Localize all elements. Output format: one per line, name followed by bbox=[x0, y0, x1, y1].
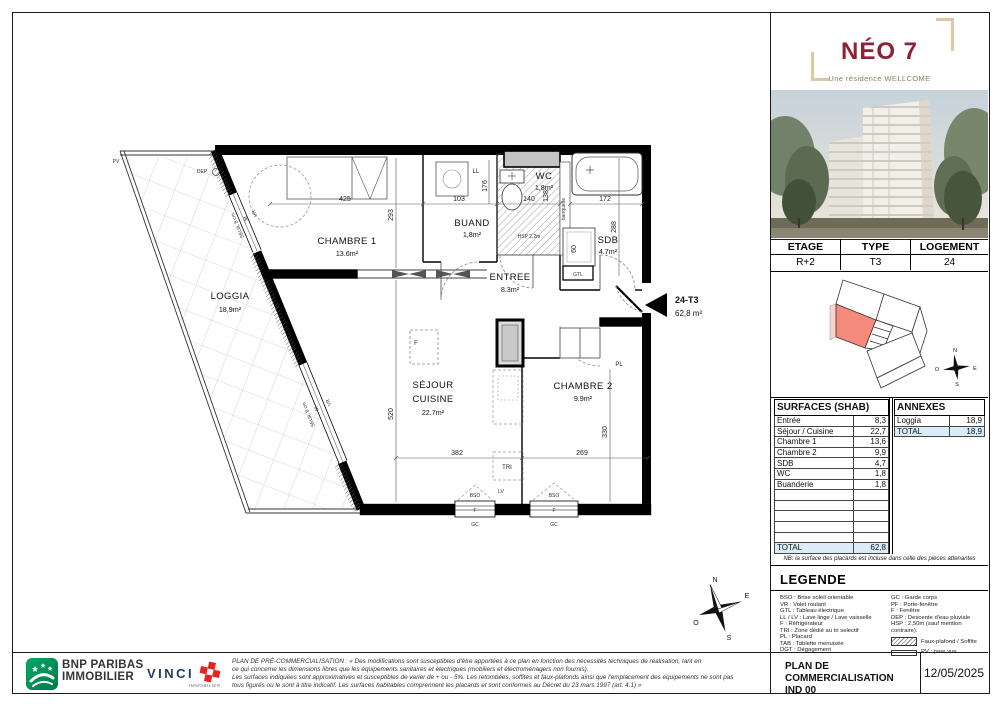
room-sejour-area: 22.7m² bbox=[422, 408, 445, 417]
vinci-sub-text: IMMOBILIER bbox=[147, 683, 221, 688]
plan-compass-icon: N E O S bbox=[691, 577, 750, 642]
annexe-row-label: Loggia bbox=[895, 416, 950, 427]
key-plan-drawing: N E S O bbox=[771, 271, 988, 397]
legend-section: LEGENDE BSO : Brise soleil orientable VR… bbox=[771, 566, 988, 652]
surfaces-table: SURFACES (SHAB) Entrée8,3 Séjour / Cuisi… bbox=[774, 399, 889, 554]
disclaimer-line: PLAN DE PRÉ-COMMERCIALISATION : « Des mo… bbox=[232, 658, 762, 666]
surface-row-value: 9,9 bbox=[854, 447, 889, 458]
info-value-type: T3 bbox=[841, 255, 911, 270]
surface-row-label: SDB bbox=[775, 458, 854, 469]
surface-row-value: 1,8 bbox=[854, 479, 889, 490]
surface-row-value: 8,3 bbox=[854, 416, 889, 427]
closet-front bbox=[357, 270, 487, 278]
surface-row-label: Chambre 2 bbox=[775, 447, 854, 458]
annexes-table: ANNEXES Loggia18,9 TOTAL18,9 bbox=[894, 399, 985, 437]
info-header-logement: LOGEMENT bbox=[911, 239, 988, 255]
room-sdb-area: 4.7m² bbox=[599, 247, 618, 256]
compass-n: N bbox=[712, 577, 717, 584]
legend-item: Faux-plafond / Soffite bbox=[921, 639, 977, 646]
dim-293: 293 bbox=[388, 209, 395, 221]
info-value-etage: R+2 bbox=[771, 255, 841, 270]
room-buand-label: BUAND bbox=[454, 218, 489, 229]
dim-330: 330 bbox=[602, 426, 609, 438]
surface-row-value: 1,8 bbox=[854, 468, 889, 479]
dim-138: 138 bbox=[543, 190, 550, 202]
room-entree-area: 8.3m² bbox=[501, 285, 520, 294]
wc-zone bbox=[497, 151, 570, 288]
building-render bbox=[771, 90, 988, 238]
tag-lv: LV bbox=[498, 489, 504, 495]
key-plan: N E S O bbox=[771, 271, 988, 398]
annexes-total-label: TOTAL bbox=[895, 426, 950, 437]
surfaces-section: SURFACES (SHAB) Entrée8,3 Séjour / Cuisi… bbox=[771, 397, 988, 566]
surface-row-value: 22,7 bbox=[854, 426, 889, 437]
disclaimer-line: tous figurés ou le sont à titre indicati… bbox=[232, 682, 762, 690]
plan-sheet: LOGGIA 18,9m² CHAMBRE 1 13.6m² BUAND 1,8… bbox=[0, 0, 1000, 707]
bnp-logo-icon bbox=[26, 658, 58, 690]
logo-box: NÉO 7 Une résidence WELLCOME bbox=[771, 12, 988, 91]
faux-plafond-symbol bbox=[891, 637, 917, 646]
legend-rule bbox=[771, 590, 988, 591]
surface-row-label: Séjour / Cuisine bbox=[775, 426, 854, 437]
residence-subtitle: Une résidence WELLCOME bbox=[771, 74, 988, 83]
room-sejour-label1: SÉJOUR bbox=[413, 380, 454, 391]
vinci-logo-text: VINCI bbox=[147, 666, 194, 681]
unit-label: 24-T3 62,8 m² bbox=[675, 295, 702, 318]
tag-dep: DEP bbox=[197, 169, 208, 175]
dim-520: 520 bbox=[388, 408, 395, 420]
nb-note: NB: la surface des placards est incluse … bbox=[771, 556, 988, 562]
legend-title: LEGENDE bbox=[780, 572, 846, 587]
info-header-etage: ETAGE bbox=[771, 239, 841, 255]
tag-gtl: GTL bbox=[573, 272, 583, 278]
footer-divider-1 bbox=[770, 653, 771, 693]
keyplan-compass-s: S bbox=[955, 382, 959, 388]
tag-tri: TRI bbox=[502, 465, 512, 471]
surface-row-label: Chambre 1 bbox=[775, 437, 854, 448]
plan-title-line1: PLAN DE COMMERCIALISATION bbox=[785, 661, 915, 685]
dim-140: 140 bbox=[523, 196, 535, 203]
surface-row-value: 4,7 bbox=[854, 458, 889, 469]
annexes-title: ANNEXES bbox=[895, 400, 985, 416]
tag-fridge: F bbox=[414, 341, 418, 347]
bnp-logo-text: BNP PARIBAS IMMOBILIER bbox=[62, 659, 143, 683]
tag-ll: LL bbox=[473, 169, 480, 175]
legend-item: HSP : 2,50m (sauf mention contraire). bbox=[891, 621, 986, 634]
keyplan-compass-o: O bbox=[935, 367, 940, 373]
room-sdb-label: SDB bbox=[598, 235, 619, 246]
dim-176: 176 bbox=[482, 180, 489, 192]
plan-title-line2: IND 00 bbox=[785, 685, 915, 697]
table-divider bbox=[889, 397, 893, 554]
surface-row-label: Entrée bbox=[775, 416, 854, 427]
surfaces-title: SURFACES (SHAB) bbox=[775, 400, 889, 416]
legend-right-column: GC : Garde corps PF : Porte-fenêtre F : … bbox=[891, 595, 986, 656]
tag-pl: PL bbox=[615, 362, 623, 368]
surface-row-label: WC bbox=[775, 468, 854, 479]
dim-269: 269 bbox=[576, 450, 588, 457]
tag-f-window-2: F bbox=[552, 508, 555, 514]
legend-left-column: BSO : Brise soleil orientable VR : Volet… bbox=[780, 595, 890, 654]
room-buand-area: 1,8m² bbox=[463, 230, 482, 239]
room-sejour-label2: CUISINE bbox=[412, 394, 453, 405]
room-chambre1-label: CHAMBRE 1 bbox=[317, 236, 376, 247]
dim-382: 382 bbox=[451, 450, 463, 457]
bnp-line1: BNP PARIBAS bbox=[62, 659, 143, 671]
sdb-fixtures bbox=[563, 153, 642, 290]
tag-pv: PV bbox=[113, 159, 120, 165]
tag-gc-2: GC bbox=[550, 522, 558, 528]
room-loggia-area: 18,9m² bbox=[219, 305, 242, 314]
dim-172: 172 bbox=[599, 196, 611, 203]
dim-288: 288 bbox=[611, 221, 618, 233]
compass-o: O bbox=[693, 620, 699, 627]
floor-plan: LOGGIA 18,9m² CHAMBRE 1 13.6m² BUAND 1,8… bbox=[12, 12, 770, 652]
tag-gc-1: GC bbox=[471, 522, 479, 528]
unit-code: 24-T3 bbox=[675, 295, 699, 305]
room-chambre1-area: 13.6m² bbox=[336, 249, 359, 258]
disclaimer-line: ce qui concerne les dimensions libres qu… bbox=[232, 666, 762, 674]
annexes-total-value: 18,9 bbox=[950, 426, 985, 437]
dim-60: 60 bbox=[571, 245, 578, 253]
info-header-type: TYPE bbox=[841, 239, 911, 255]
plan-title-block: PLAN DE COMMERCIALISATION IND 00 bbox=[785, 661, 915, 697]
unit-area: 62,8 m² bbox=[675, 309, 702, 318]
disclaimer-line: Les surfaces indiquées sont approximativ… bbox=[232, 674, 762, 682]
bnp-line2: IMMOBILIER bbox=[62, 671, 143, 683]
room-loggia-label: LOGGIA bbox=[211, 291, 250, 302]
residence-logo: NÉO 7 bbox=[771, 38, 988, 66]
room-chambre2-area: 9.9m² bbox=[574, 394, 593, 403]
tag-f-window-1: F bbox=[473, 508, 476, 514]
title-block-footer: BNP PARIBAS IMMOBILIER VINCI IMMOBILIER … bbox=[12, 652, 988, 693]
tag-hsp: HSP 2,2m bbox=[518, 234, 541, 240]
compass-s: S bbox=[727, 635, 732, 642]
tag-banquette: banquette bbox=[561, 198, 567, 220]
surfaces-total-value: 62,8 bbox=[854, 543, 889, 554]
building-photo bbox=[771, 90, 988, 240]
surface-row-value: 13,6 bbox=[854, 437, 889, 448]
surface-row-label: Buanderie bbox=[775, 479, 854, 490]
room-entree-label: ENTREE bbox=[490, 272, 531, 283]
vinci-logo-icon bbox=[199, 661, 221, 683]
tag-vr-2: VR bbox=[325, 398, 333, 407]
dim-425: 425 bbox=[339, 196, 351, 203]
info-value-logement: 24 bbox=[911, 255, 988, 270]
disclaimer: PLAN DE PRÉ-COMMERCIALISATION : « Des mo… bbox=[232, 658, 762, 690]
chambre1-fixtures bbox=[249, 157, 387, 227]
tag-bso-2: BSO bbox=[549, 493, 560, 499]
compass-e: E bbox=[745, 593, 750, 600]
annexe-row-value: 18,9 bbox=[950, 416, 985, 427]
unit-info-table: ETAGE TYPE LOGEMENT R+2 T3 24 bbox=[771, 239, 988, 272]
keyplan-compass-n: N bbox=[953, 348, 957, 354]
keyplan-compass-e: E bbox=[973, 366, 977, 372]
plan-date: 12/05/2025 bbox=[920, 653, 988, 693]
keyplan-compass-icon: N E S O bbox=[935, 348, 977, 388]
vinci-logo: VINCI IMMOBILIER bbox=[147, 661, 221, 688]
room-chambre2-label: CHAMBRE 2 bbox=[553, 381, 612, 392]
tag-bso-1: BSO bbox=[470, 493, 481, 499]
room-wc-label: WC bbox=[536, 171, 553, 182]
dim-103: 103 bbox=[453, 196, 465, 203]
surfaces-total-label: TOTAL bbox=[775, 543, 854, 554]
